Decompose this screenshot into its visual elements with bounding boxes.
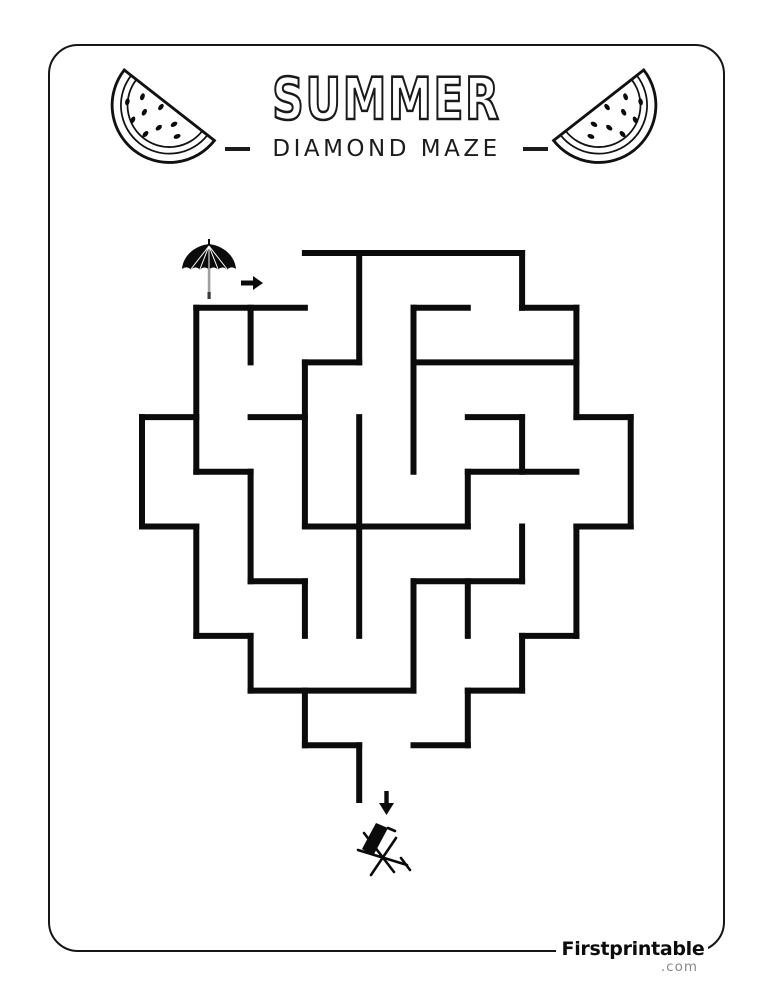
right-arrow-icon [240, 273, 265, 293]
worksheet-page: SUMMER DIAMOND MAZE [0, 0, 773, 1000]
down-arrow-icon [376, 790, 397, 817]
deck-chair-icon [355, 822, 418, 882]
brand-domain: .com [560, 959, 698, 975]
beach-umbrella-icon [179, 238, 239, 300]
brand-logo: Firstprintable [558, 938, 708, 960]
